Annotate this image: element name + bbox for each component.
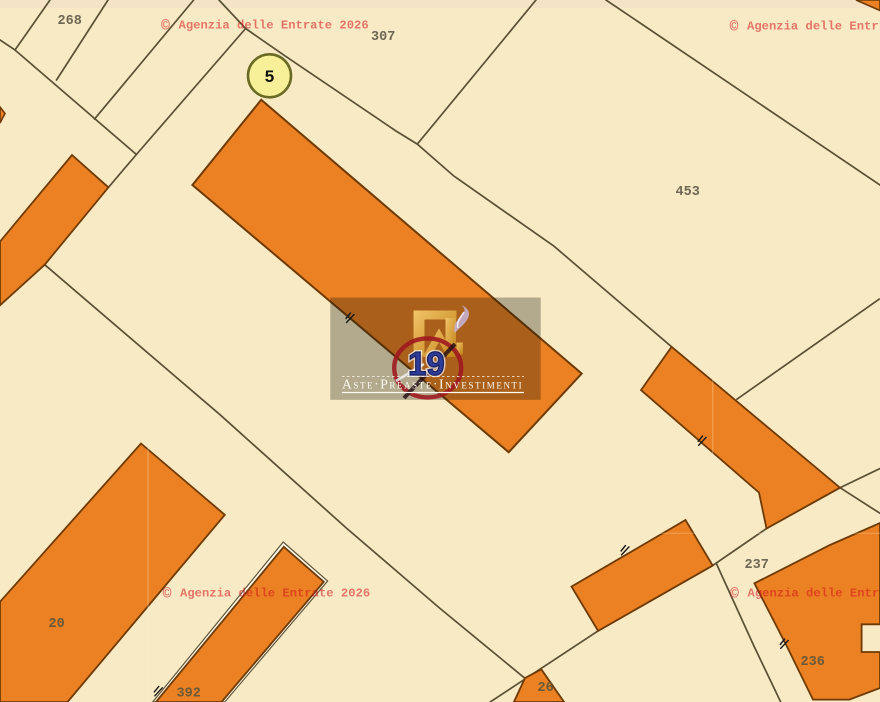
svg-text:©: © (730, 586, 739, 603)
svg-text:453: 453 (676, 185, 700, 200)
svg-text:Aste·Preaste·Investimenti: Aste·Preaste·Investimenti (342, 377, 523, 392)
svg-text:©: © (163, 586, 172, 603)
svg-text:392: 392 (177, 687, 201, 702)
svg-text:©: © (161, 18, 170, 35)
svg-text:©: © (730, 19, 739, 36)
svg-text:237: 237 (745, 558, 769, 573)
svg-text:Agenzia delle Entrate 2026: Agenzia delle Entrate 2026 (180, 587, 370, 601)
svg-text:26: 26 (538, 681, 554, 696)
svg-text:307: 307 (371, 30, 395, 45)
svg-text:236: 236 (801, 655, 825, 670)
svg-text:20: 20 (49, 617, 65, 632)
svg-text:268: 268 (58, 14, 82, 29)
svg-text:Agenzia delle Entr: Agenzia delle Entr (748, 587, 880, 601)
svg-text:5: 5 (265, 67, 274, 86)
svg-text:Agenzia delle Entr: Agenzia delle Entr (747, 20, 879, 34)
svg-text:Agenzia delle Entrate 2026: Agenzia delle Entrate 2026 (179, 19, 369, 33)
